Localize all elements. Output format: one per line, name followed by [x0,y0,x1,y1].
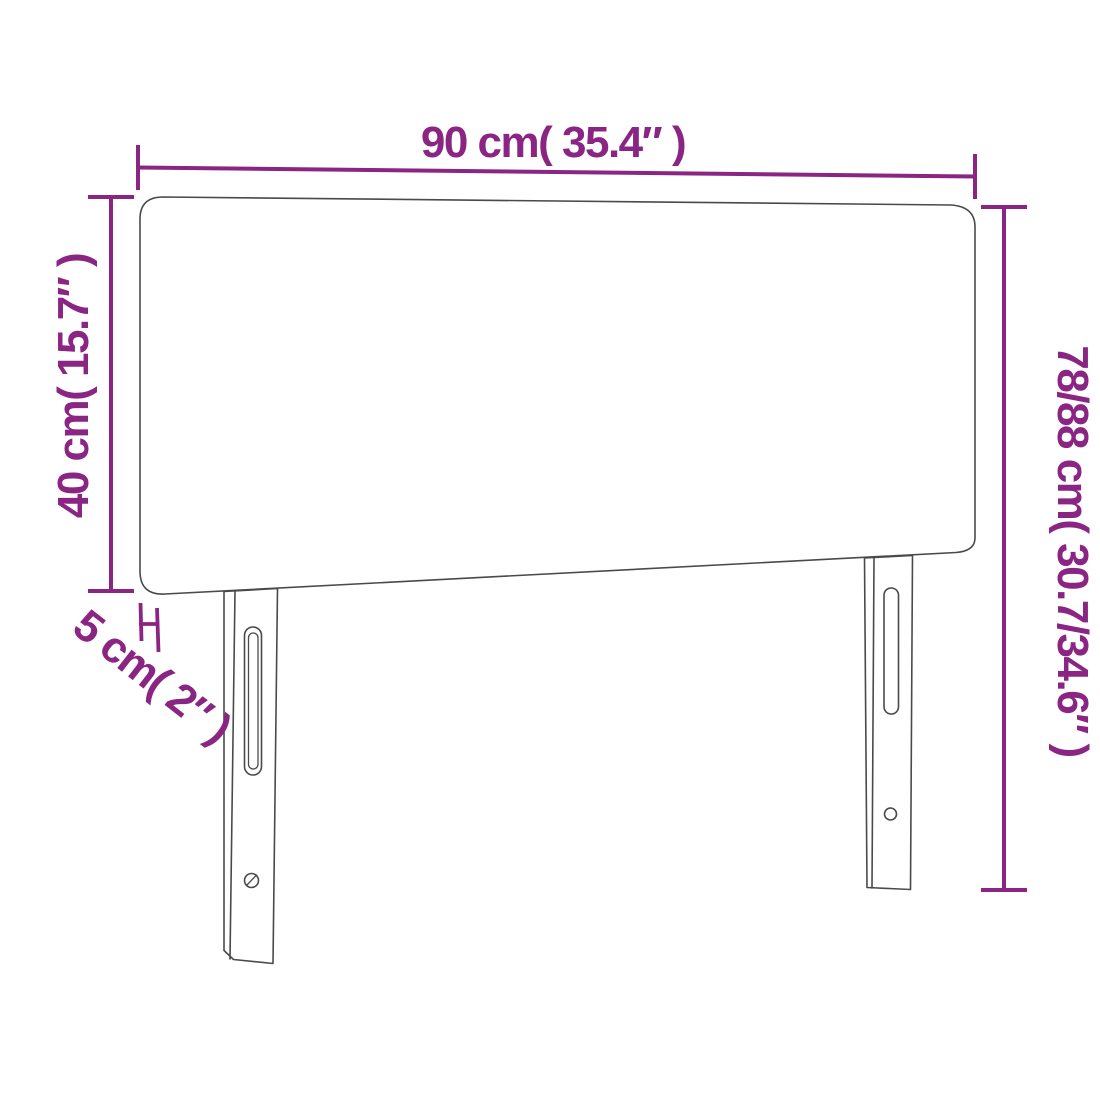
depth-right-tick [157,608,159,652]
right-leg-screw-hole [885,808,897,820]
left-leg [224,589,278,964]
depth-left-tick [141,603,142,641]
headboard-dimension-diagram: 90 cm( 35.4″ ) 40 cm( 15.7″ ) 78/88 cm( … [0,0,1100,1100]
headboard-drawing [140,197,975,964]
left-leg-slot-inner [249,633,259,769]
headboard-panel-outline [140,197,975,594]
right-height-dimension-label: 78/88 cm( 30.7/34.6″ ) [1048,345,1097,756]
width-dim-main-line [138,168,975,177]
width-dimension-label: 90 cm( 35.4″ ) [421,118,685,167]
right-leg [865,556,913,890]
right-leg-slot [884,588,899,714]
right-height-dimension-line [981,207,1027,890]
diagram-svg: 90 cm( 35.4″ ) 40 cm( 15.7″ ) 78/88 cm( … [0,0,1100,1100]
left-height-dimension-label: 40 cm( 15.7″ ) [49,254,98,518]
